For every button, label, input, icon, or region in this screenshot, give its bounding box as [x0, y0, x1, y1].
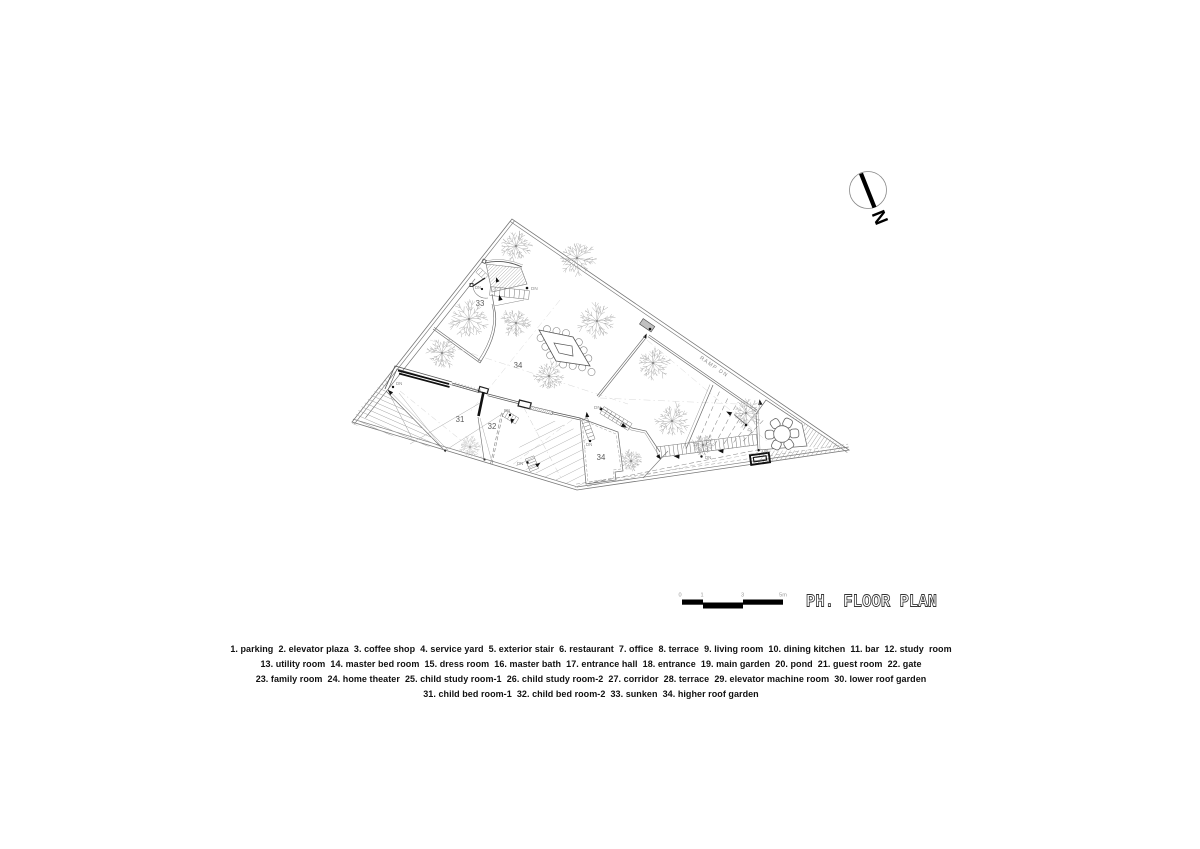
svg-text:5m: 5m	[779, 593, 787, 599]
svg-text:DN: DN	[475, 285, 481, 290]
svg-text:31: 31	[456, 415, 465, 424]
svg-text:1: 1	[700, 593, 703, 599]
svg-text:3: 3	[741, 593, 744, 599]
svg-text:32: 32	[488, 422, 497, 431]
svg-text:33: 33	[476, 299, 485, 308]
svg-text:DN: DN	[594, 405, 601, 410]
svg-text:DN: DN	[762, 449, 768, 454]
svg-text:DN: DN	[504, 408, 510, 413]
svg-text:34: 34	[597, 453, 606, 462]
svg-text:DN: DN	[705, 455, 711, 460]
svg-text:0: 0	[678, 593, 681, 599]
svg-text:PH. FLOOR PLAN: PH. FLOOR PLAN	[806, 593, 937, 613]
svg-text:DN: DN	[586, 442, 592, 447]
svg-text:DN: DN	[517, 461, 523, 466]
svg-text:DN: DN	[531, 286, 538, 291]
svg-text:DN: DN	[396, 381, 402, 386]
